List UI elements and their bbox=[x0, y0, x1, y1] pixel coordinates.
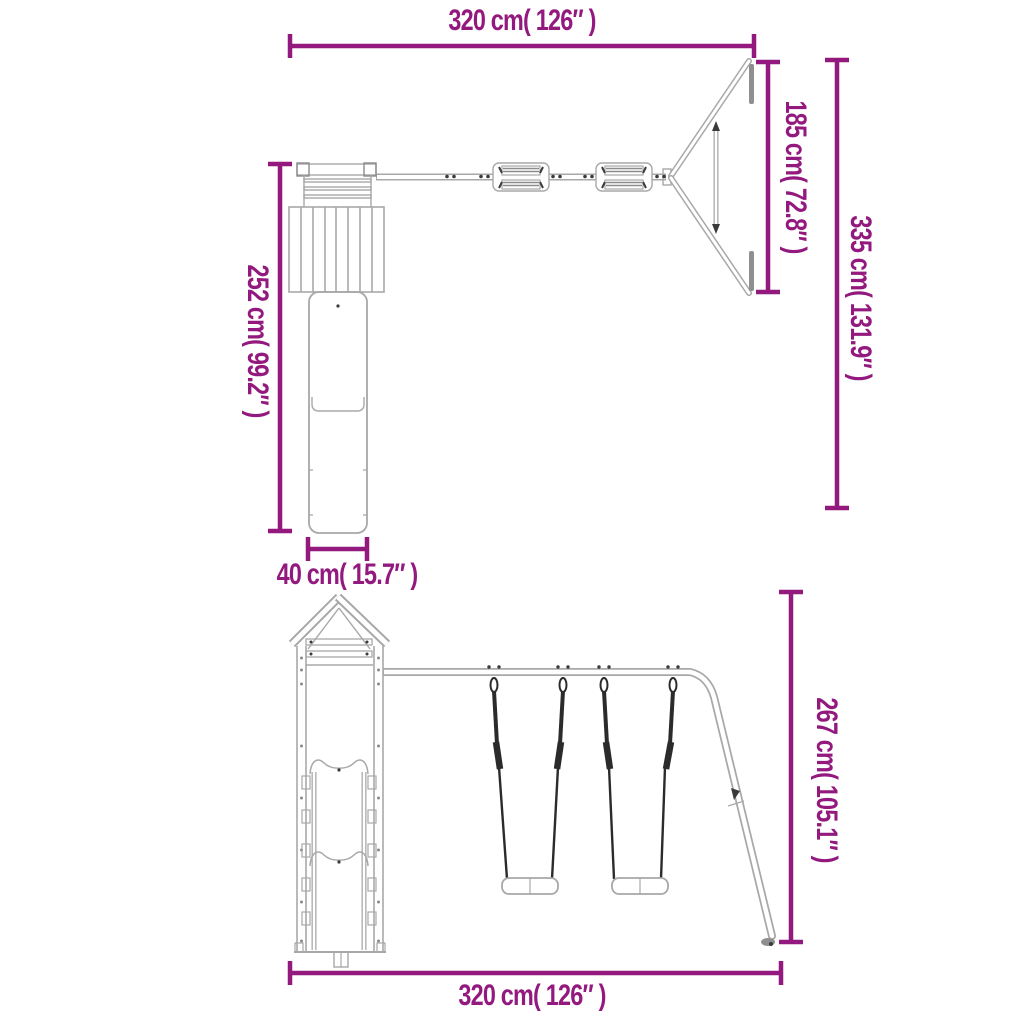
top-view-art bbox=[289, 61, 754, 533]
front-view-art bbox=[292, 597, 775, 967]
tower-roof-deck-top bbox=[289, 207, 384, 292]
swing-seat-top-1 bbox=[493, 163, 549, 191]
slide-top-view bbox=[309, 292, 367, 533]
a-frame-foot-top bbox=[749, 64, 754, 104]
dim-label-front-width: 320 cm( 126″ ) bbox=[458, 981, 605, 1011]
swing-beam-front bbox=[383, 672, 775, 946]
brace-arrow-up bbox=[712, 121, 720, 131]
dim-line-top-width bbox=[290, 34, 754, 58]
playset-dimension-diagram: 320 cm( 126″ ) 185 cm( 72.8″ ) 335 cm( 1… bbox=[0, 0, 1024, 1024]
swings-front bbox=[487, 665, 679, 894]
swing-hanger-links bbox=[491, 678, 677, 692]
dim-label-top-width: 320 cm( 126″ ) bbox=[448, 6, 595, 36]
line-art bbox=[0, 0, 1024, 1024]
swing-seats-front bbox=[502, 878, 668, 894]
dim-label-slide-width: 40 cm( 15.7″ ) bbox=[277, 560, 418, 590]
tower-ridge-top bbox=[297, 163, 376, 207]
swing-seat-top-2 bbox=[596, 163, 652, 191]
swing-ropes bbox=[494, 691, 673, 879]
leg-foot bbox=[761, 938, 775, 946]
dim-line-frame-depth bbox=[756, 62, 780, 292]
a-frame-foot-bottom bbox=[749, 251, 754, 291]
slide-front-view bbox=[302, 760, 376, 950]
brace-arrow-down bbox=[712, 224, 720, 234]
dim-label-frame-depth: 185 cm( 72.8″ ) bbox=[780, 100, 810, 253]
a-frame-top bbox=[671, 61, 754, 293]
tower-front bbox=[294, 639, 386, 967]
dim-label-tower-depth: 252 cm( 99.2″ ) bbox=[242, 264, 272, 417]
dim-line-front-height bbox=[779, 592, 803, 942]
dim-label-front-height: 267 cm( 105.1″ ) bbox=[811, 697, 841, 862]
dim-label-total-depth: 335 cm( 131.9″ ) bbox=[845, 215, 875, 380]
